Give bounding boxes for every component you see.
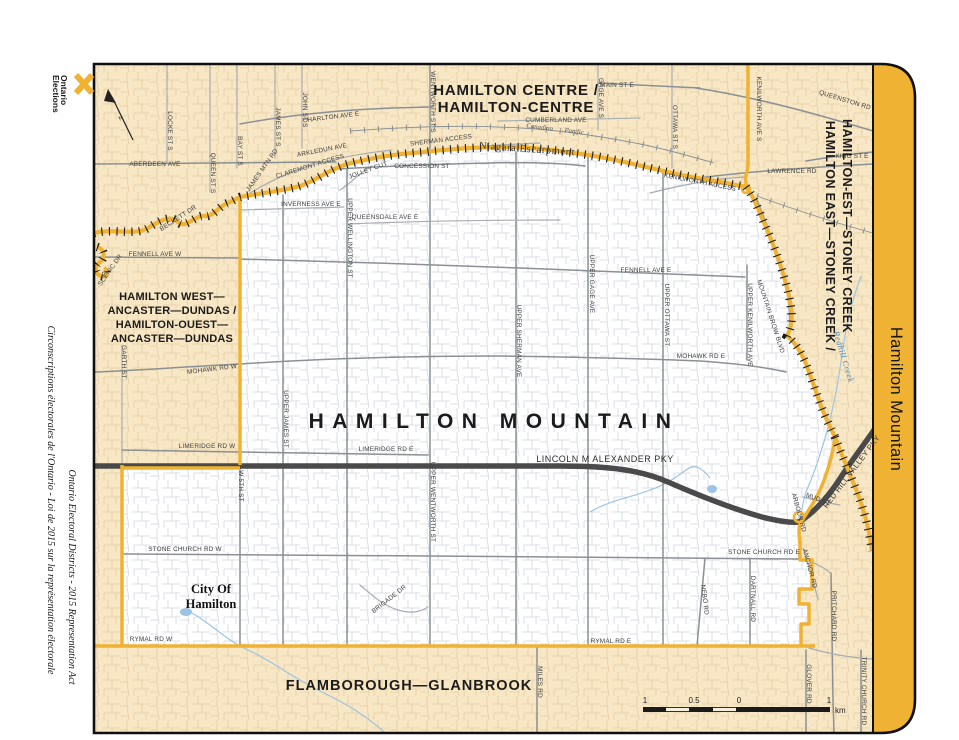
street-label: FENNELL AVE W — [129, 251, 182, 258]
street-label: GLOVER RD — [805, 664, 812, 704]
city-label: City Of — [191, 582, 232, 596]
street-label: BAY ST S — [236, 136, 243, 166]
elections-ontario-logo: Elections Ontario — [51, 75, 92, 113]
band-title: Hamilton Mountain — [887, 327, 905, 471]
street-label: RYMAL RD E — [591, 638, 632, 645]
street-label: QUEEN ST S — [209, 153, 216, 194]
street-label: ABERDEEN AVE — [129, 161, 180, 168]
logo-text: Ontario — [59, 75, 69, 105]
street-label: UPPER WENTWORTH ST — [429, 462, 436, 542]
street-label: MILES RD — [536, 666, 543, 698]
street-label: WENTWORTH ST S — [429, 71, 436, 133]
district-label-east: HAMILTON EAST—STONEY CREEK / — [823, 121, 837, 352]
street-label: KENILWORTH AVE S — [755, 77, 762, 142]
district-label-mountain: HAMILTON MOUNTAIN — [309, 410, 680, 433]
scale-tick: 1 — [643, 696, 648, 705]
street-label: UPPER GAGE AVE — [588, 255, 595, 314]
street-label: W 5TH ST — [237, 470, 244, 501]
street-label: JAMES ST S — [274, 107, 281, 146]
street-label: PRITCHARD RD — [830, 591, 837, 642]
street-label: RYMAL RD W — [130, 636, 173, 643]
street-label: UPPER SHERMAN AVE — [515, 305, 522, 378]
street-label: LIMERIDGE RD W — [179, 443, 237, 450]
district-label-centre: HAMILTON-CENTRE — [438, 99, 594, 116]
street-label: LINCOLN M ALEXANDER PKY — [536, 454, 674, 464]
map-page: Hamilton Mountain MAIN ST E QUEENSTON RD… — [0, 0, 959, 740]
map-sheet: Hamilton Mountain MAIN ST E QUEENSTON RD… — [94, 64, 915, 733]
scale-tick: 0 — [737, 696, 742, 705]
street-label: UPPER JAMES ST — [282, 390, 289, 448]
street-label: STONE CHURCH RD E — [728, 549, 800, 556]
electoral-district-map: Hamilton Mountain MAIN ST E QUEENSTON RD… — [0, 0, 959, 740]
street-label: MAIN ST E — [600, 82, 634, 89]
district-label-flamborough: FLAMBOROUGH—GLANBROOK — [286, 678, 533, 694]
district-label-centre: HAMILTON CENTRE / — [433, 82, 599, 99]
scale-unit: km — [835, 706, 846, 715]
street-label: INVERNESS AVE E — [281, 201, 341, 208]
district-label-west: HAMILTON WEST— — [119, 291, 225, 303]
credit-english: Ontario Electoral Districts - 2015 Repre… — [66, 470, 77, 685]
street-label: STONE CHURCH RD W — [148, 546, 222, 553]
street-label: UPPER WELLINGTON ST — [346, 198, 353, 278]
scale-tick: 0.5 — [688, 696, 700, 705]
city-label: Hamilton — [186, 597, 237, 611]
district-label-west: ANCASTER—DUNDAS — [111, 333, 233, 345]
street-label: GARTH ST — [120, 345, 127, 379]
street-label: CONCESSION ST — [394, 163, 450, 170]
street-label: UPPER OTTAWA ST — [663, 284, 670, 347]
ballot-x-icon — [76, 75, 92, 93]
street-label: QUEENSDALE AVE E — [352, 214, 419, 221]
street-label: LOCKE ST S — [166, 111, 173, 151]
street-label: LIMERIDGE RD E — [359, 446, 414, 453]
margin: Elections Ontario Circonscriptions élect… — [45, 75, 92, 685]
street-label: TRINITY CHURCH RD — [860, 657, 867, 726]
title-band: Hamilton Mountain — [873, 64, 915, 733]
street-label: DARTNALL RD — [749, 576, 756, 622]
district-label-east: HAMILTON-EST—STONEY CREEK — [840, 119, 854, 333]
street-label: OTTAWA ST S — [671, 105, 678, 149]
street-label: FENNELL AVE E — [621, 267, 672, 274]
scale-tick: 1 — [827, 696, 832, 705]
street-label: MOHAWK RD E — [677, 353, 725, 360]
district-label-west: ANCASTER—DUNDAS / — [108, 305, 237, 317]
street-label: LAWRENCE RD — [767, 168, 816, 175]
street-label: UPPER KENILWORTH AVE — [746, 283, 753, 367]
credit-french: Circonscriptions électorales de l'Ontari… — [45, 326, 56, 675]
district-label-west: HAMILTON-OUEST— — [116, 319, 229, 331]
